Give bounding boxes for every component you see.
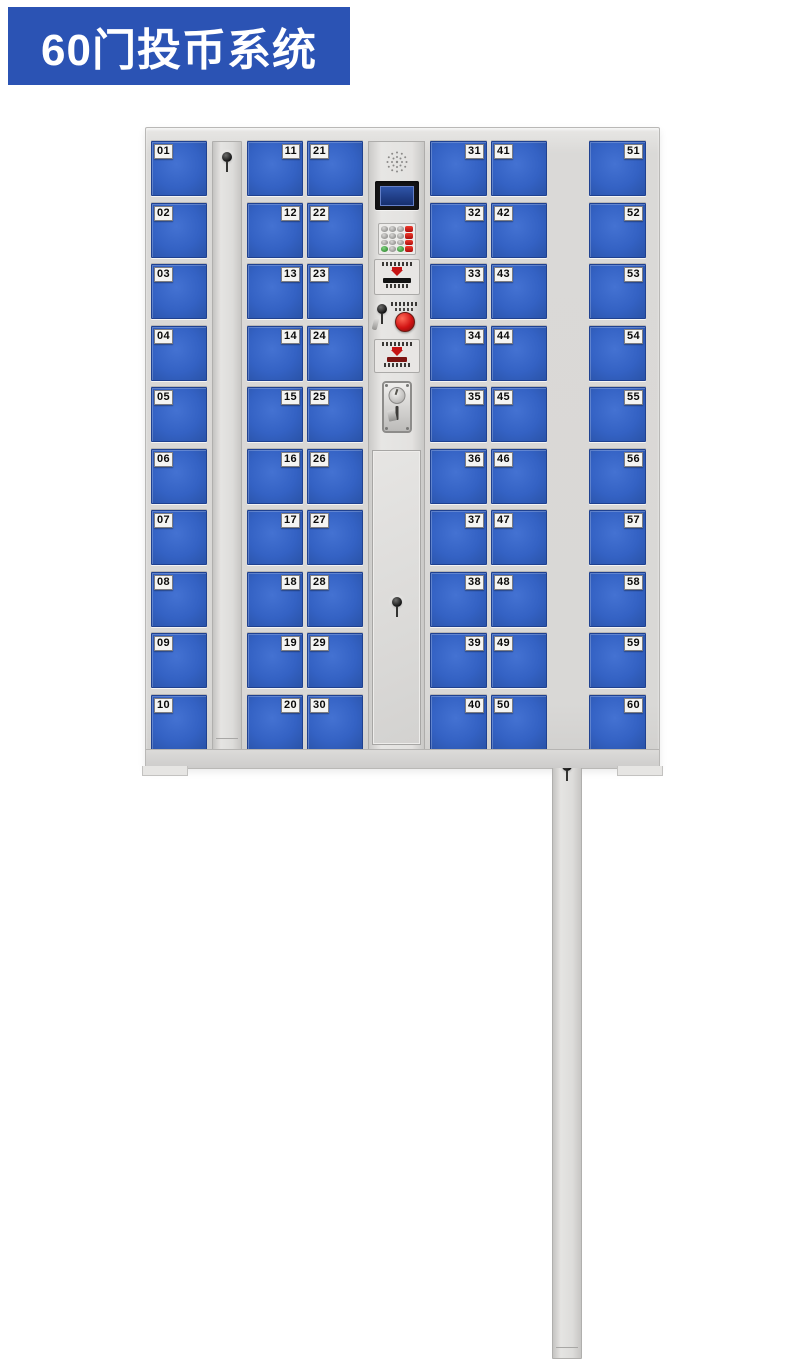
door-number-label: 43: [494, 267, 513, 282]
locker-door-21: 21: [307, 141, 363, 196]
keypad-key: [389, 246, 396, 252]
door-number-label: 29: [310, 636, 329, 651]
locker-door-35: 35: [430, 387, 487, 442]
locker-door-39: 39: [430, 633, 487, 688]
control-panel-column: [368, 141, 425, 750]
door-number-label: 06: [154, 452, 173, 467]
door-number-label: 42: [494, 206, 513, 221]
door-number-label: 30: [310, 698, 329, 713]
keypad-key: [405, 233, 412, 239]
locker-door-18: 18: [247, 572, 303, 627]
page-title: 60门投币系统: [41, 14, 317, 78]
red-slot-graphic: [387, 357, 407, 362]
cabinet-foot-left: [142, 766, 188, 776]
locker-door-57: 57: [589, 510, 646, 565]
locker-door-08: 08: [151, 572, 207, 627]
illegible-label-text: [386, 284, 408, 288]
locker-door-19: 19: [247, 633, 303, 688]
door-number-label: 48: [494, 575, 513, 590]
illegible-label-text: [395, 308, 413, 311]
illegible-label-text: [391, 302, 417, 306]
locker-door-16: 16: [247, 449, 303, 504]
lcd-screen: [380, 186, 414, 206]
illegible-label-text: [384, 363, 410, 367]
door-number-label: 04: [154, 329, 173, 344]
door-number-label: 46: [494, 452, 513, 467]
locker-door-32: 32: [430, 203, 487, 258]
keyhole-icon: [222, 152, 232, 162]
locker-door-43: 43: [491, 264, 547, 319]
door-number-label: 10: [154, 698, 173, 713]
locker-door-28: 28: [307, 572, 363, 627]
locker-door-27: 27: [307, 510, 363, 565]
locker-door-04: 04: [151, 326, 207, 381]
keypad-key: [405, 240, 412, 246]
keypad-key: [405, 246, 412, 252]
locker-door-24: 24: [307, 326, 363, 381]
door-number-label: 07: [154, 513, 173, 528]
door-number-label: 35: [465, 390, 484, 405]
locker-door-51: 51: [589, 141, 646, 196]
locker-door-22: 22: [307, 203, 363, 258]
door-number-label: 44: [494, 329, 513, 344]
locker-door-48: 48: [491, 572, 547, 627]
keypad-key: [397, 226, 404, 232]
door-number-label: 38: [465, 575, 484, 590]
door-number-label: 19: [281, 636, 300, 651]
door-number-label: 60: [624, 698, 643, 713]
door-number-label: 34: [465, 329, 484, 344]
locker-door-15: 15: [247, 387, 303, 442]
locker-column-51-60: 51525354555657585960: [589, 141, 646, 750]
keypad-key: [389, 226, 396, 232]
locker-door-30: 30: [307, 695, 363, 750]
locker-door-06: 06: [151, 449, 207, 504]
door-number-label: 24: [310, 329, 329, 344]
door-number-label: 05: [154, 390, 173, 405]
locker-door-05: 05: [151, 387, 207, 442]
door-number-label: 25: [310, 390, 329, 405]
locker-door-52: 52: [589, 203, 646, 258]
locker-door-12: 12: [247, 203, 303, 258]
door-number-label: 45: [494, 390, 513, 405]
door-number-label: 55: [624, 390, 643, 405]
keypad-key: [381, 233, 388, 239]
locker-column-41-50: 41424344454647484950: [491, 141, 547, 750]
hanging-key-icon: [372, 318, 380, 331]
keypad-key: [389, 233, 396, 239]
locker-door-37: 37: [430, 510, 487, 565]
service-door-keyhole-icon: [392, 597, 402, 607]
door-number-label: 18: [281, 575, 300, 590]
door-number-label: 17: [281, 513, 300, 528]
keypad-key: [397, 246, 404, 252]
keypad-key: [397, 233, 404, 239]
locker-column-21-30: 21222324252627282930: [307, 141, 363, 750]
locker-door-26: 26: [307, 449, 363, 504]
red-button: [395, 312, 415, 332]
door-number-label: 23: [310, 267, 329, 282]
locker-door-34: 34: [430, 326, 487, 381]
door-number-label: 14: [281, 329, 300, 344]
door-number-label: 26: [310, 452, 329, 467]
keypad-key: [381, 226, 388, 232]
locker-door-17: 17: [247, 510, 303, 565]
locker-door-38: 38: [430, 572, 487, 627]
locker-cabinet: 01020304050607080910 1112131415161718192…: [145, 127, 660, 769]
door-number-label: 57: [624, 513, 643, 528]
locker-door-23: 23: [307, 264, 363, 319]
locker-door-13: 13: [247, 264, 303, 319]
door-number-label: 20: [281, 698, 300, 713]
door-number-label: 39: [465, 636, 484, 651]
locker-column-01-10: 01020304050607080910: [151, 141, 207, 750]
door-number-label: 28: [310, 575, 329, 590]
locker-door-49: 49: [491, 633, 547, 688]
coin-acceptor: [382, 381, 412, 433]
door-number-label: 09: [154, 636, 173, 651]
locker-door-07: 07: [151, 510, 207, 565]
door-number-label: 08: [154, 575, 173, 590]
locker-door-01: 01: [151, 141, 207, 196]
locker-door-33: 33: [430, 264, 487, 319]
locker-door-55: 55: [589, 387, 646, 442]
card-reader-panel: [374, 259, 420, 295]
locker-door-60: 60: [589, 695, 646, 750]
locker-door-02: 02: [151, 203, 207, 258]
door-number-label: 31: [465, 144, 484, 159]
door-number-label: 52: [624, 206, 643, 221]
locker-door-40: 40: [430, 695, 487, 750]
door-number-label: 47: [494, 513, 513, 528]
door-number-label: 12: [281, 206, 300, 221]
locker-door-59: 59: [589, 633, 646, 688]
locker-door-45: 45: [491, 387, 547, 442]
door-number-label: 16: [281, 452, 300, 467]
locker-door-03: 03: [151, 264, 207, 319]
coin-instruction-panel: [374, 339, 420, 373]
door-number-label: 21: [310, 144, 329, 159]
door-number-label: 13: [281, 267, 300, 282]
cabinet-foot-right: [617, 766, 663, 776]
coin-lever: [386, 409, 396, 421]
locker-door-11: 11: [247, 141, 303, 196]
door-number-label: 32: [465, 206, 484, 221]
left-lock-strip: [212, 141, 242, 750]
door-number-label: 58: [624, 575, 643, 590]
door-number-label: 40: [465, 698, 484, 713]
door-number-label: 01: [154, 144, 173, 159]
door-number-label: 50: [494, 698, 513, 713]
master-keyhole-icon: [377, 304, 387, 314]
card-slot: [383, 278, 411, 283]
door-number-label: 02: [154, 206, 173, 221]
service-door: [372, 450, 421, 745]
door-number-label: 36: [465, 452, 484, 467]
right-lock-strip: [552, 750, 582, 1359]
door-number-label: 59: [624, 636, 643, 651]
door-number-label: 33: [465, 267, 484, 282]
locker-door-14: 14: [247, 326, 303, 381]
locker-door-56: 56: [589, 449, 646, 504]
door-number-label: 54: [624, 329, 643, 344]
door-number-label: 49: [494, 636, 513, 651]
locker-door-36: 36: [430, 449, 487, 504]
locker-door-20: 20: [247, 695, 303, 750]
door-number-label: 51: [624, 144, 643, 159]
locker-columns: 01020304050607080910 1112131415161718192…: [146, 141, 659, 750]
locker-door-53: 53: [589, 264, 646, 319]
keypad-key: [381, 246, 388, 252]
door-number-label: 11: [282, 144, 300, 159]
key-and-button-zone: [369, 299, 424, 337]
locker-door-31: 31: [430, 141, 487, 196]
locker-door-10: 10: [151, 695, 207, 750]
locker-door-25: 25: [307, 387, 363, 442]
locker-door-47: 47: [491, 510, 547, 565]
keypad: [378, 223, 416, 255]
keypad-key: [389, 240, 396, 246]
door-number-label: 41: [494, 144, 513, 159]
locker-door-50: 50: [491, 695, 547, 750]
locker-door-09: 09: [151, 633, 207, 688]
cabinet-base: [146, 749, 659, 768]
locker-door-44: 44: [491, 326, 547, 381]
door-number-label: 03: [154, 267, 173, 282]
door-number-label: 15: [281, 390, 300, 405]
locker-column-31-40: 31323334353637383940: [430, 141, 487, 750]
locker-door-46: 46: [491, 449, 547, 504]
door-number-label: 27: [310, 513, 329, 528]
keypad-key: [397, 240, 404, 246]
locker-door-58: 58: [589, 572, 646, 627]
door-number-label: 56: [624, 452, 643, 467]
illegible-label-text: [382, 342, 412, 346]
locker-door-41: 41: [491, 141, 547, 196]
keypad-key: [405, 226, 412, 232]
keypad-key: [381, 240, 388, 246]
locker-door-42: 42: [491, 203, 547, 258]
locker-door-54: 54: [589, 326, 646, 381]
illegible-label-text: [382, 262, 412, 266]
speaker-grille-icon: [383, 148, 411, 176]
locker-door-29: 29: [307, 633, 363, 688]
lcd-display: [375, 181, 419, 210]
locker-column-11-20: 11121314151617181920: [247, 141, 303, 750]
page-title-banner: 60门投币系统: [8, 7, 350, 85]
door-number-label: 22: [310, 206, 329, 221]
door-number-label: 53: [624, 267, 643, 282]
coin-return-dial: [388, 387, 405, 404]
door-number-label: 37: [465, 513, 484, 528]
